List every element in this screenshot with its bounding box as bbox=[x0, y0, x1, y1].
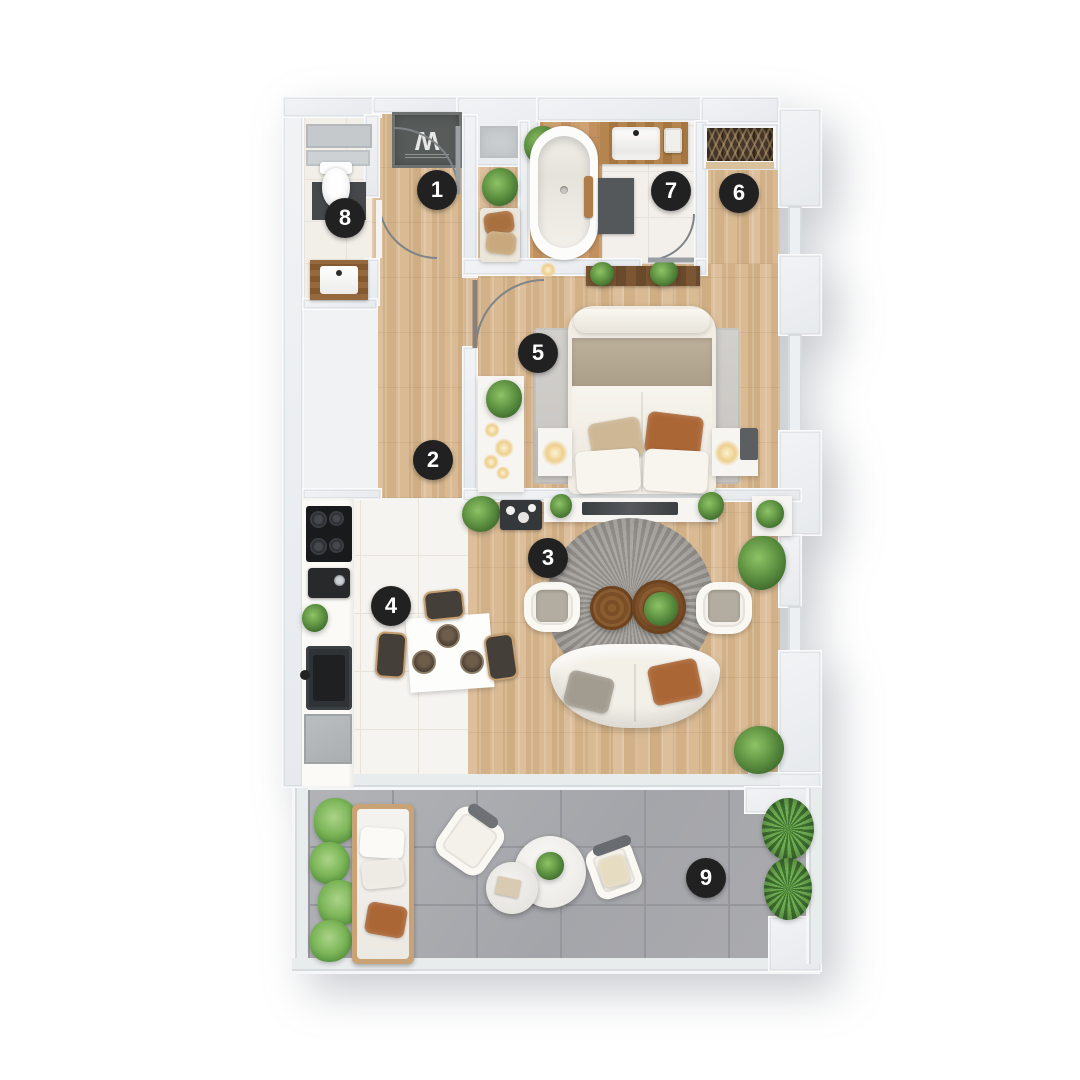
closet-hanging-clothes bbox=[707, 128, 773, 161]
stove-burner-1 bbox=[310, 511, 327, 528]
decor-vase-2 bbox=[518, 512, 529, 523]
nightstand-lamp-right bbox=[714, 440, 740, 466]
dishwasher bbox=[304, 714, 352, 764]
balcony-plant-right-2 bbox=[764, 858, 812, 920]
sliding-door-track bbox=[302, 774, 780, 790]
bathtub-tray bbox=[584, 176, 593, 218]
dining-plate-1 bbox=[436, 624, 460, 648]
dresser-candle-4 bbox=[496, 466, 510, 480]
wall-right-pier2 bbox=[778, 254, 822, 336]
floor-entry-hall bbox=[372, 112, 468, 498]
dining-plate-2 bbox=[412, 650, 436, 674]
wall-top-bath bbox=[536, 96, 706, 122]
stove-burner-3 bbox=[310, 538, 327, 555]
bath-cosmetics-tray bbox=[664, 128, 682, 153]
wc-faucet bbox=[336, 270, 342, 276]
room-marker-3[interactable]: 3 bbox=[528, 538, 568, 578]
balcony-rail-left bbox=[292, 788, 308, 972]
doormat-monogram: W bbox=[415, 125, 440, 156]
coffee-table-small bbox=[590, 586, 634, 630]
closet-shelf bbox=[706, 162, 774, 169]
room-marker-9[interactable]: 9 bbox=[686, 858, 726, 898]
wall-hall-bedroom-lower bbox=[462, 346, 478, 498]
room-marker-1[interactable]: 1 bbox=[417, 170, 457, 210]
wall-outer-left bbox=[282, 96, 304, 788]
outdoor-pillow-2 bbox=[361, 858, 406, 890]
wall-topright-pier bbox=[778, 108, 822, 208]
tv-screen bbox=[582, 502, 678, 515]
room-marker-6[interactable]: 6 bbox=[719, 173, 759, 213]
outdoor-pillow-1 bbox=[359, 827, 405, 860]
dresser-candle-1 bbox=[484, 422, 500, 438]
wall-top-wardrobe bbox=[700, 96, 780, 124]
floor-shaft-zone bbox=[300, 306, 378, 498]
dresser-candle-2 bbox=[494, 438, 514, 458]
outdoor-pillow-rust bbox=[364, 901, 409, 939]
bed-footboard-roll bbox=[574, 309, 710, 333]
decor-vase-3 bbox=[528, 504, 536, 512]
floor-plan-canvas: W bbox=[0, 0, 1080, 1080]
bed-throw-blanket bbox=[572, 338, 712, 386]
bed-pillow-white-right bbox=[643, 448, 709, 493]
kitchen-sink-basin bbox=[313, 655, 345, 701]
room-marker-8[interactable]: 8 bbox=[325, 198, 365, 238]
nightstand-lamp-left bbox=[542, 440, 568, 466]
washing-machine bbox=[306, 124, 372, 148]
armchair-right-cushion bbox=[708, 590, 740, 622]
coffee-machine-dial bbox=[334, 575, 345, 586]
doormat: W bbox=[392, 112, 462, 168]
bath-faucet bbox=[633, 130, 639, 136]
dining-plate-3 bbox=[460, 650, 484, 674]
room-marker-2[interactable]: 2 bbox=[413, 440, 453, 480]
bath-mat bbox=[598, 178, 634, 234]
bed-pillow-white-left bbox=[575, 448, 642, 494]
armchair-left-cushion bbox=[536, 590, 568, 622]
balcony-plant-right-1 bbox=[762, 798, 814, 860]
bench-pillow-tan bbox=[485, 230, 517, 255]
sofa-seat-split bbox=[634, 664, 636, 722]
bathtub-drain bbox=[560, 186, 568, 194]
window-living bbox=[788, 606, 802, 652]
shaft-entry bbox=[480, 126, 518, 158]
wall-hall-bedroom-upper bbox=[462, 114, 478, 278]
decor-vase-1 bbox=[506, 506, 515, 515]
room-marker-7[interactable]: 7 bbox=[651, 171, 691, 211]
wall-right-pier4 bbox=[778, 650, 822, 774]
bedroom-pendant-lamp bbox=[540, 262, 556, 278]
dining-chair-top bbox=[423, 588, 466, 622]
dining-chair-right bbox=[483, 632, 519, 682]
stove-burner-2 bbox=[329, 511, 344, 526]
room-marker-4[interactable]: 4 bbox=[371, 586, 411, 626]
room-marker-5[interactable]: 5 bbox=[518, 333, 558, 373]
stove-burner-4 bbox=[329, 538, 344, 553]
dining-chair-left bbox=[374, 631, 407, 679]
window-wardrobe bbox=[788, 206, 802, 256]
window-bedroom bbox=[788, 334, 802, 432]
apartment-floor-plan: W bbox=[0, 0, 1080, 1080]
kitchen-faucet bbox=[300, 670, 310, 680]
bedroom-bench-dark bbox=[740, 428, 758, 460]
